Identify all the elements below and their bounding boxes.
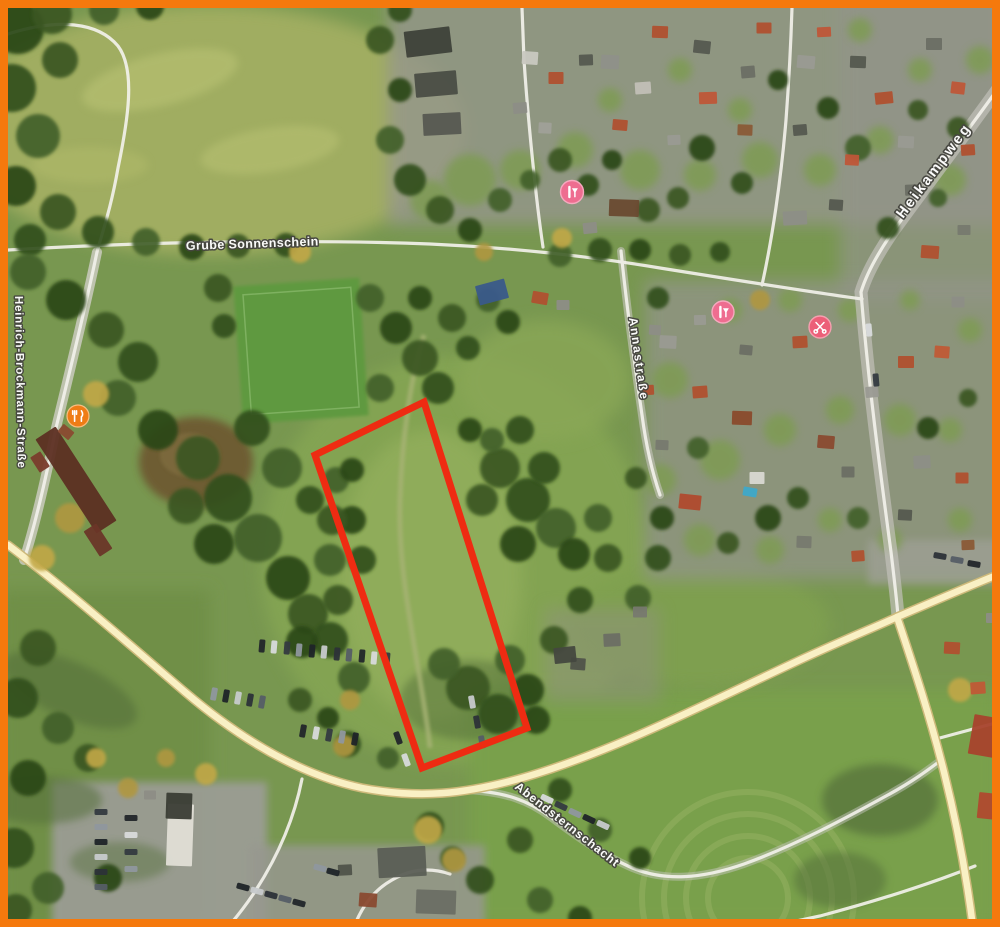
sports-field [233, 278, 368, 424]
autumn-tree [157, 749, 175, 767]
tree [768, 70, 788, 90]
building-roof [796, 55, 815, 70]
building-roof [422, 112, 461, 136]
building-roof [865, 386, 879, 398]
tree [366, 26, 394, 54]
tree [376, 126, 404, 154]
garden-patch [884, 404, 916, 436]
tree [288, 688, 312, 712]
building-roof [921, 245, 940, 259]
car [872, 373, 879, 386]
tree [817, 97, 839, 119]
tree [458, 418, 482, 442]
building-roof [783, 210, 808, 225]
building-roof [557, 300, 570, 310]
tree [584, 504, 612, 532]
autumn-tree [340, 690, 360, 710]
garden-patch [938, 418, 962, 442]
tree [755, 505, 781, 531]
tree [669, 244, 691, 266]
tree [500, 526, 536, 562]
tree [594, 544, 622, 572]
food-drink-icon[interactable] [712, 301, 734, 323]
map-viewport[interactable]: Grube Sonnenschein Heinrich-Brockmann-St… [0, 0, 1000, 927]
tree [32, 872, 64, 904]
building-roof [692, 385, 708, 398]
tree [787, 487, 809, 509]
car [345, 648, 352, 661]
car [333, 647, 340, 660]
building-roof [612, 119, 628, 131]
tree [506, 416, 534, 444]
building-roof [144, 791, 156, 800]
building-roof [416, 889, 457, 914]
building-roof [850, 56, 866, 69]
building-roof [549, 72, 564, 84]
tree [480, 428, 504, 452]
tree [20, 630, 56, 666]
car [865, 323, 872, 336]
building-roof [633, 607, 647, 618]
tree [132, 228, 160, 256]
building-roof [737, 124, 752, 136]
tree [650, 506, 674, 530]
restaurant-icon[interactable] [67, 405, 89, 427]
building-roof [579, 54, 593, 65]
tree [380, 312, 412, 344]
building-roof [166, 793, 193, 820]
car [295, 643, 302, 656]
building-roof [961, 540, 974, 550]
garden-patch [778, 288, 802, 312]
building-roof [338, 864, 353, 876]
building-roof [950, 81, 965, 95]
tree [82, 216, 114, 248]
tree [929, 189, 947, 207]
tree [356, 284, 384, 312]
car [308, 644, 315, 657]
car [258, 639, 265, 652]
building-roof [958, 225, 971, 235]
tree [408, 286, 432, 310]
tree [204, 474, 252, 522]
tree [266, 556, 310, 600]
garden-patch [620, 150, 660, 190]
tree [458, 218, 482, 242]
tree [588, 238, 612, 262]
tree [877, 217, 899, 239]
tree [466, 866, 494, 894]
building-roof [404, 26, 453, 57]
tree [296, 486, 324, 514]
tree [262, 448, 302, 488]
building-roof [513, 102, 528, 114]
car [320, 645, 327, 658]
car [95, 884, 108, 890]
autumn-tree [750, 290, 770, 310]
garden-patch [684, 159, 716, 191]
building-roof [926, 38, 942, 50]
car [125, 849, 138, 855]
car [95, 809, 108, 815]
car [95, 854, 108, 860]
garden-patch [742, 142, 778, 178]
tree [647, 287, 669, 309]
tree [394, 164, 426, 196]
tree [731, 172, 753, 194]
tree [168, 488, 204, 524]
tree [16, 114, 60, 158]
tree [629, 239, 651, 261]
building-roof [956, 473, 969, 484]
tree [138, 410, 178, 450]
car [370, 651, 377, 664]
car [358, 649, 365, 662]
tree [645, 545, 671, 571]
tree [687, 437, 709, 459]
building-roof [913, 455, 931, 469]
garden-patch [756, 536, 784, 564]
garden-patch [958, 318, 982, 342]
tree [40, 194, 76, 230]
autumn-tree [948, 678, 972, 702]
tree [88, 312, 124, 348]
building-roof [359, 892, 378, 907]
tree [340, 458, 364, 482]
garden-patch [684, 524, 716, 556]
car [95, 824, 108, 830]
garden-patch [598, 88, 622, 112]
tree [959, 389, 977, 407]
autumn-tree [442, 848, 466, 872]
building-roof [874, 91, 893, 105]
building-roof [934, 345, 950, 358]
building-roof [603, 633, 621, 647]
autumn-tree [195, 763, 217, 785]
garden-patch [826, 396, 854, 424]
building-roof [635, 81, 652, 94]
tree [422, 372, 454, 404]
tree [567, 587, 593, 613]
tree [10, 254, 46, 290]
building-roof [694, 315, 706, 325]
tree [388, 78, 412, 102]
tree [456, 336, 480, 360]
tree [46, 280, 86, 320]
building-roof [699, 92, 717, 105]
building-roof [970, 681, 986, 694]
building-roof [851, 550, 865, 562]
building-roof [757, 23, 772, 34]
tree [212, 314, 236, 338]
car [125, 815, 138, 821]
building-roof [667, 135, 681, 146]
garden-patch [966, 46, 994, 74]
tree [689, 135, 715, 161]
building-roof [796, 536, 811, 549]
tree [234, 410, 270, 446]
building-roof [582, 222, 597, 234]
tree [629, 847, 651, 869]
building-roof [732, 411, 752, 426]
garden-patch [908, 58, 932, 82]
autumn-tree [83, 381, 109, 407]
building-roof [792, 336, 808, 349]
tree [717, 532, 739, 554]
tree [520, 170, 540, 190]
tree [323, 585, 353, 615]
building-roof [522, 51, 539, 65]
autumn-tree [552, 228, 572, 248]
car [125, 832, 138, 838]
tree [428, 648, 460, 680]
satellite-map[interactable]: Grube Sonnenschein Heinrich-Brockmann-St… [0, 0, 1000, 927]
building-roof [898, 356, 914, 368]
autumn-tree [118, 778, 138, 798]
building-roof [842, 467, 855, 478]
tree [478, 694, 518, 734]
tree [710, 242, 730, 262]
building-roof [659, 335, 677, 349]
garden-patch [804, 154, 836, 186]
building-roof [817, 435, 835, 449]
tree [625, 467, 647, 489]
tree [14, 224, 46, 256]
garden-patch [818, 508, 842, 532]
building-roof [553, 646, 577, 664]
autumn-tree [414, 816, 442, 844]
car [125, 866, 138, 872]
tree [602, 150, 622, 170]
building-roof [377, 846, 427, 878]
tree [480, 448, 520, 488]
garden-patch [728, 98, 752, 122]
tree [847, 507, 869, 529]
tree [314, 544, 346, 576]
tree [338, 662, 370, 694]
tree [438, 304, 466, 332]
building-roof [944, 642, 961, 655]
building-roof [649, 325, 662, 336]
tree [42, 42, 78, 78]
tree [528, 452, 560, 484]
building-roof [952, 297, 965, 308]
building-roof [655, 440, 668, 450]
garden-patch [900, 290, 920, 310]
tree [402, 340, 438, 376]
tree [194, 524, 234, 564]
tree [118, 342, 158, 382]
building-roof [845, 154, 860, 166]
building-roof [898, 136, 915, 149]
building-roof [741, 65, 756, 78]
tree [42, 712, 74, 744]
building-roof [739, 344, 753, 355]
garden-patch [668, 58, 692, 82]
autumn-tree [29, 545, 55, 571]
building-roof [601, 55, 620, 70]
building-roof [817, 27, 832, 38]
tree [234, 514, 282, 562]
building-roof [678, 493, 701, 510]
car [283, 641, 290, 654]
building-roof [793, 124, 808, 136]
tree [527, 887, 553, 913]
tree [507, 827, 533, 853]
tree [176, 436, 220, 480]
tree [908, 100, 928, 120]
building-roof [414, 70, 458, 98]
building-roof [652, 26, 668, 39]
garden-patch [848, 18, 872, 42]
car [95, 869, 108, 875]
building-roof [829, 199, 844, 211]
tree [488, 188, 512, 212]
tree [667, 187, 689, 209]
building-roof [693, 40, 711, 55]
building-roof [750, 472, 765, 484]
tree [636, 198, 660, 222]
tree [366, 374, 394, 402]
tree [466, 484, 498, 516]
tree [558, 538, 590, 570]
building-roof [538, 122, 552, 134]
car [95, 839, 108, 845]
tree [496, 310, 520, 334]
salon-icon[interactable] [809, 316, 831, 338]
tree [917, 417, 939, 439]
building-roof [898, 509, 913, 521]
tree [317, 707, 339, 729]
tree [548, 148, 572, 172]
car [270, 640, 277, 653]
garden-patch [652, 362, 688, 398]
garden-patch [764, 414, 796, 446]
tree [10, 760, 46, 796]
autumn-tree [475, 243, 493, 261]
autumn-tree [86, 748, 106, 768]
garden-patch [948, 508, 972, 532]
tree [426, 196, 454, 224]
building-roof [609, 199, 640, 217]
tree [204, 274, 232, 302]
tree [377, 747, 399, 769]
food-drink-icon[interactable] [561, 181, 584, 204]
